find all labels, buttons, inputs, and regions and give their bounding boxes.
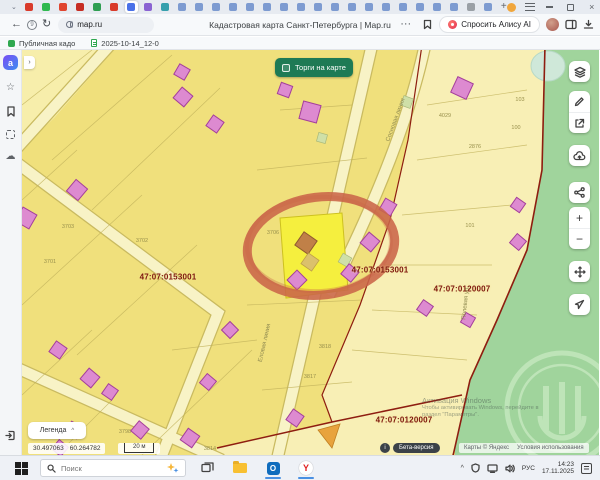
caret-up-icon: ^ [71,428,74,434]
search-icon [47,464,56,473]
action-center-icon[interactable] [581,463,592,474]
browser-toolbar: ← 9 ↻ map.ru Кадастровая карта Санкт-Пет… [0,14,600,36]
tab[interactable] [363,1,376,13]
tab[interactable] [431,1,444,13]
zoom-out-button[interactable]: − [569,228,590,249]
tab[interactable] [244,1,257,13]
taskbar-search[interactable] [40,459,186,477]
maximize-button[interactable] [565,1,577,13]
tab[interactable] [23,1,36,13]
profile-avatar[interactable] [546,18,559,31]
layers-button[interactable] [569,61,590,82]
legend-button[interactable]: Легенда ^ [28,422,86,439]
beta-badge: Бета-версия [393,443,440,453]
time-value: 14:23 [542,461,574,469]
folder-icon [233,463,247,473]
longitude-value: 30.497063 [33,445,64,452]
tab[interactable] [74,1,87,13]
draw-export-group [569,91,590,133]
clock[interactable]: 14:23 17.11.2025 [542,461,574,476]
layers-icon [574,66,586,78]
tab[interactable] [91,1,104,13]
tab[interactable] [465,1,478,13]
close-button[interactable]: × [586,1,598,13]
pencil-icon [574,96,585,107]
network-icon[interactable] [487,464,498,473]
task-view-button[interactable] [195,457,219,479]
tab[interactable] [210,1,223,13]
volume-icon[interactable] [505,464,515,473]
bookmark-item-pkk[interactable]: Публичная кадо [8,39,75,48]
tab[interactable] [142,1,155,13]
beta-info-icon[interactable]: i [380,443,390,453]
windows-logo-icon [15,462,28,475]
cadastral-map[interactable]: Активация Windows Чтобы активировать Win… [22,50,599,455]
outlook-button[interactable]: O [261,457,285,479]
side-panel-icon[interactable] [565,19,577,30]
locate-button[interactable] [569,294,590,315]
tab[interactable] [227,1,240,13]
scale-bar: 20 м [118,443,160,454]
tab[interactable] [125,1,138,13]
tab[interactable] [261,1,274,13]
start-button[interactable] [10,457,32,479]
tab[interactable] [40,1,53,13]
shield-icon[interactable] [471,463,480,473]
scale-label: 20 м [124,443,154,453]
torgi-toggle-button[interactable]: Торги на карте [275,58,353,77]
map-canvas[interactable] [22,50,599,455]
reward-icon[interactable] [507,3,516,12]
terms-link[interactable]: Условия использования [517,445,584,451]
tab[interactable] [159,1,172,13]
tab-list-chevron-icon[interactable]: ⌄ [11,3,17,11]
browser-side-panel: a ☆ ☁ [0,50,22,455]
yandex-browser-button[interactable]: Y [294,457,318,479]
ask-alice-button[interactable]: Спросить Алису AI [439,16,540,33]
favorites-star-icon[interactable]: ☆ [6,83,15,93]
file-favicon [91,39,97,47]
pkk-favicon [8,40,15,47]
zoom-control: + − [569,207,590,249]
coordinates-readout: 30.497063 60.264782 [28,443,105,454]
torgi-checkbox[interactable] [282,64,290,72]
share-button[interactable] [569,182,590,203]
tab[interactable] [380,1,393,13]
cloud-upload-icon [573,150,586,162]
windows-taskbar: O Y ^ РУС 14:23 17.11.2025 [0,455,600,480]
export-button[interactable] [569,112,590,133]
address-bar[interactable]: map.ru [58,17,154,33]
tab[interactable] [312,1,325,13]
screenshot-icon[interactable] [6,130,15,139]
tab[interactable] [193,1,206,13]
tab[interactable] [176,1,189,13]
more-icon[interactable]: ··· [400,19,411,30]
search-input[interactable] [61,464,160,473]
panel-expand-button[interactable]: › [24,56,35,69]
pan-button[interactable] [569,261,590,282]
tab-strip-tabs [23,1,495,13]
language-indicator[interactable]: РУС [522,465,535,472]
signin-icon[interactable] [5,430,16,441]
tab[interactable] [57,1,70,13]
outlook-icon: O [267,462,280,475]
bookmarks-bar: Публичная кадо 2025-10-14_12-0 [0,37,600,50]
tab[interactable] [448,1,461,13]
zoom-in-button[interactable]: + [569,207,590,228]
search-highlights-icon [165,462,179,474]
collections-icon[interactable] [6,106,16,117]
browser-tab-strip: ⌄ + × [0,0,600,14]
bookmark-icon[interactable] [422,19,433,30]
export-icon [574,118,585,129]
tab[interactable] [482,1,495,13]
tab[interactable] [397,1,410,13]
date-value: 17.11.2025 [542,468,574,476]
tab[interactable] [278,1,291,13]
site-globe-icon [66,21,73,28]
tray-expand-icon[interactable]: ^ [461,465,464,472]
tab[interactable] [329,1,342,13]
latitude-value: 60.264782 [70,445,101,452]
bookmark-item-file[interactable]: 2025-10-14_12-0 [91,39,159,48]
reload-icon[interactable]: ↻ [42,19,51,30]
tab[interactable] [295,1,308,13]
print-button[interactable] [569,145,590,166]
tab[interactable] [414,1,427,13]
tab[interactable] [108,1,121,13]
selected-parcel[interactable] [280,213,348,298]
share-icon [574,187,585,198]
extension-icon[interactable]: 9 [27,20,37,30]
file-explorer-button[interactable] [228,457,252,479]
back-icon[interactable]: ← [11,19,22,30]
alice-panel-icon[interactable]: a [3,55,18,70]
system-tray: ^ РУС 14:23 17.11.2025 [461,461,600,476]
yandex-browser-icon: Y [299,461,313,475]
tab[interactable] [346,1,359,13]
draw-button[interactable] [569,91,590,112]
task-view-icon [201,462,214,474]
pan-icon [574,266,586,278]
url-text: map.ru [77,20,102,29]
screen: { "browser": { "page_title": "Кадастрова… [0,0,600,480]
cloud-icon[interactable]: ☁ [6,152,16,162]
map-attribution: Карты © Яндекс Условия использования [459,443,589,453]
location-arrow-icon [574,299,585,310]
copyright-text: Карты © Яндекс [464,445,509,451]
pond [531,51,565,81]
minimize-button[interactable] [544,1,556,13]
downloads-icon[interactable] [583,19,594,30]
alice-icon [448,20,457,29]
menu-icon[interactable] [525,3,535,11]
